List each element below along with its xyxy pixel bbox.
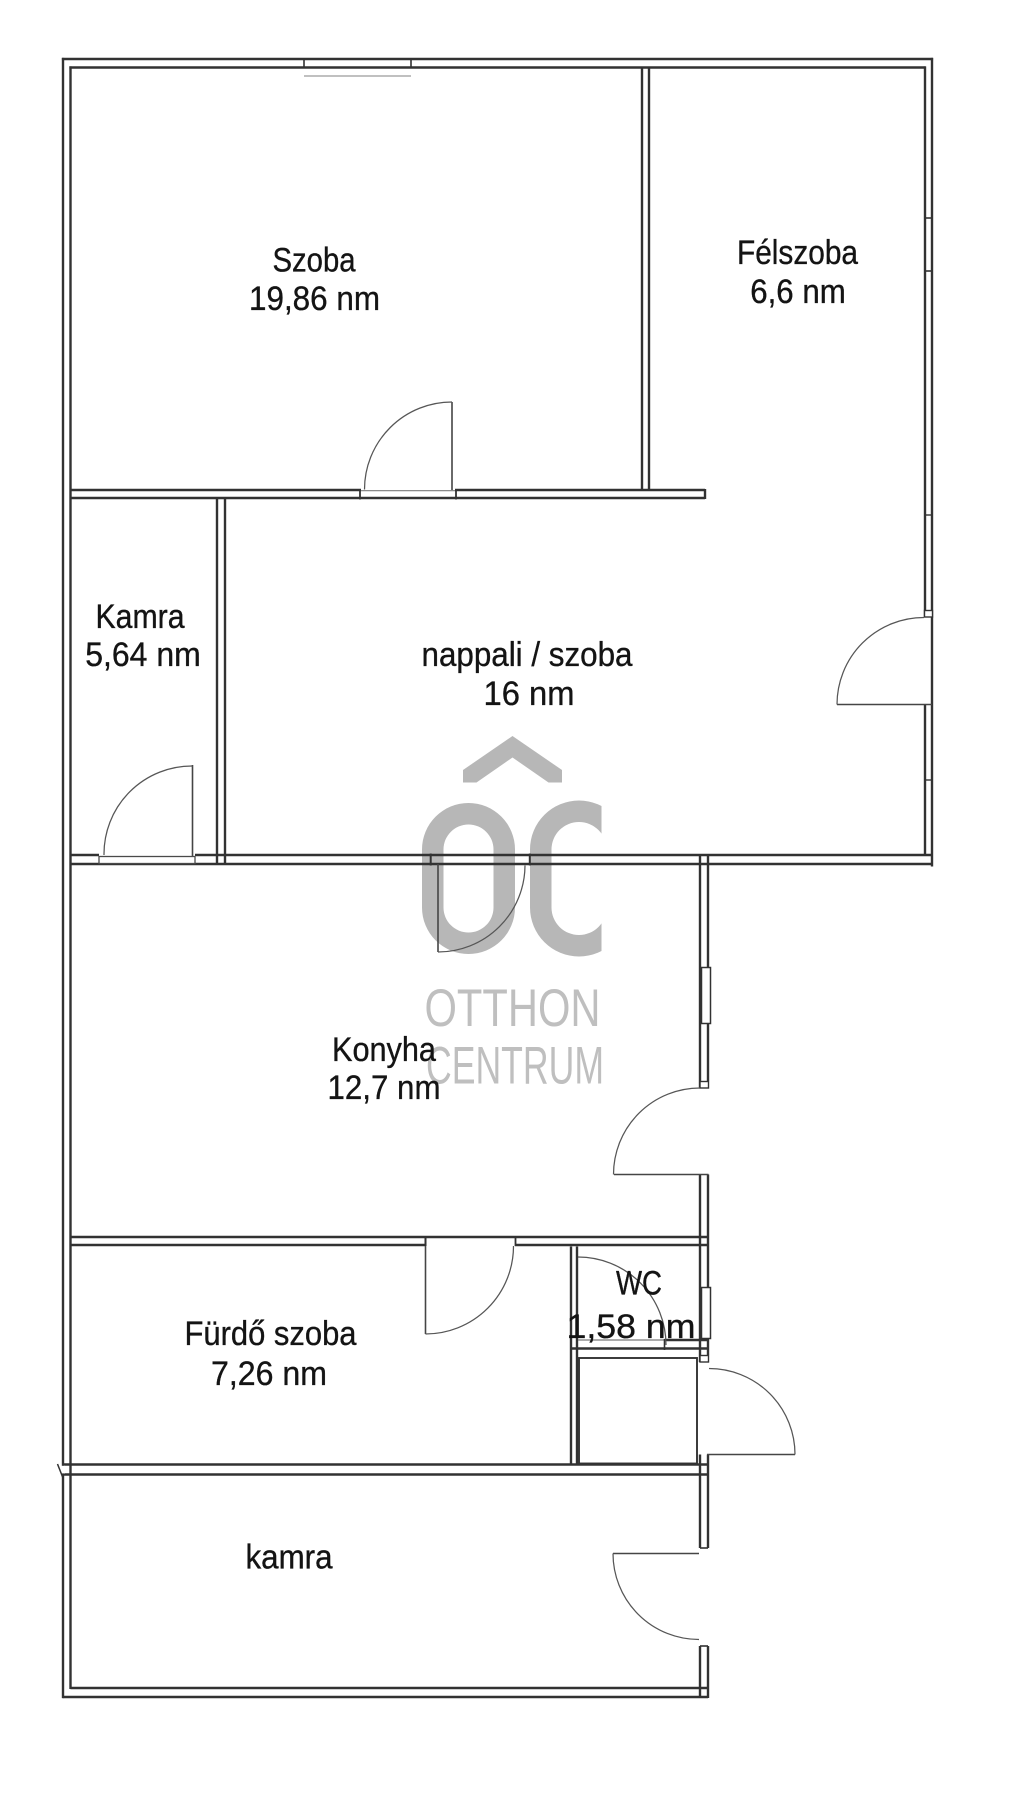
svg-text:Szoba: Szoba (273, 242, 356, 280)
svg-text:Fürdő szoba: Fürdő szoba (185, 1315, 357, 1353)
svg-text:WC: WC (616, 1265, 662, 1303)
svg-text:CENTRUM: CENTRUM (426, 1037, 604, 1096)
svg-text:kamra: kamra (246, 1539, 333, 1577)
svg-text:19,86 nm: 19,86 nm (249, 280, 380, 318)
svg-text:6,6 nm: 6,6 nm (750, 273, 846, 311)
svg-text:Konyha: Konyha (332, 1031, 436, 1069)
svg-text:Kamra: Kamra (96, 598, 185, 636)
svg-text:nappali / szoba: nappali / szoba (422, 636, 633, 674)
svg-text:7,26 nm: 7,26 nm (211, 1355, 327, 1393)
svg-text:16 nm: 16 nm (484, 675, 575, 713)
svg-text:12,7 nm: 12,7 nm (328, 1069, 441, 1107)
svg-text:5,64 nm: 5,64 nm (85, 636, 201, 674)
svg-text:Félszoba: Félszoba (737, 234, 858, 272)
svg-text:OTTHON: OTTHON (425, 979, 601, 1038)
svg-text:1,58 nm: 1,58 nm (567, 1308, 696, 1346)
